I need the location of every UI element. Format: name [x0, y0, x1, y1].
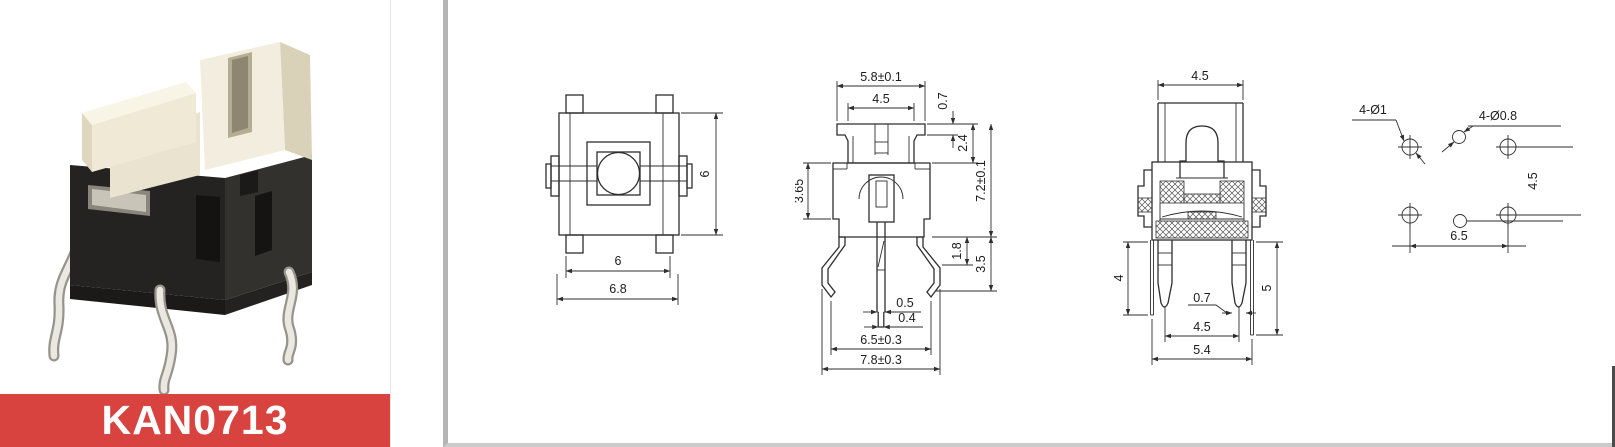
model-banner: KAN0713 [0, 394, 390, 447]
svg-text:4.5: 4.5 [1193, 320, 1210, 334]
svg-text:0.7: 0.7 [1193, 291, 1210, 305]
dim-leg-span: 7.8±0.3 [822, 289, 940, 375]
datasheet-strip: KAN0713 [0, 0, 1615, 447]
svg-text:7.8±0.3: 7.8±0.3 [860, 353, 902, 367]
dim-body-height: 3.65 [795, 163, 831, 219]
svg-text:0.7: 0.7 [936, 92, 950, 109]
svg-text:4.5: 4.5 [1526, 172, 1540, 189]
dim-side-right-leg: 5 [1256, 242, 1283, 335]
svg-text:5.4: 5.4 [1193, 343, 1210, 357]
side-view-drawing: 4.5 4 5 0.7 4.5 [1100, 55, 1345, 385]
svg-text:1.8: 1.8 [950, 242, 964, 259]
hole-crosshair-bottom-left [1398, 203, 1422, 227]
svg-text:5.8±0.1: 5.8±0.1 [860, 70, 902, 84]
svg-text:3.5: 3.5 [974, 255, 988, 272]
dim-shaft-tip-width: 0.4 [864, 311, 923, 327]
hole-plain-top [1453, 131, 1466, 144]
label-holes-large: 4-Ø1 [1352, 103, 1425, 164]
switch-body [70, 155, 312, 315]
dim-leg-bend-height: 1.8 [942, 237, 973, 265]
dim-side-leg-thickness: 0.7 [1188, 291, 1256, 313]
svg-text:3.65: 3.65 [795, 179, 806, 203]
hole-plain-bottom [1454, 215, 1467, 228]
svg-text:0.5: 0.5 [896, 296, 913, 310]
pcb-layout-drawing: 4-Ø1 4-Ø0.8 4.5 6.5 [1340, 90, 1595, 265]
dim-side-left-leg: 4 [1112, 242, 1148, 315]
dim-tip-span: 6.5±0.3 [831, 301, 931, 355]
svg-text:2.4: 2.4 [956, 134, 970, 151]
svg-text:4-Ø1: 4-Ø1 [1359, 103, 1387, 117]
svg-text:4.5: 4.5 [872, 92, 889, 106]
svg-text:6.8: 6.8 [609, 282, 626, 296]
photo-panel: KAN0713 [0, 0, 390, 447]
svg-text:6.5±0.3: 6.5±0.3 [860, 333, 902, 347]
dim-cap-height: 2.4 [932, 124, 978, 163]
svg-text:5: 5 [1260, 284, 1274, 291]
dim-shaft-width: 0.5 [863, 296, 921, 312]
svg-text:4.5: 4.5 [1191, 69, 1208, 83]
svg-text:6: 6 [698, 170, 712, 177]
top-view-geometry [546, 95, 692, 253]
dim-side-leg-span: 4.5 [1165, 307, 1239, 342]
top-view-drawing: 6 6 6.8 [460, 60, 760, 310]
dim-cap-width: 4.5 [848, 92, 914, 121]
svg-text:6.5: 6.5 [1450, 229, 1467, 243]
switch-leg-right [288, 272, 293, 360]
pcb-holes [1398, 131, 1581, 228]
dim-top-width-inner: 6 [566, 254, 670, 278]
dim-top-width-outer: 6.8 [557, 274, 678, 305]
svg-text:4: 4 [1112, 274, 1126, 281]
dim-pcb-col-pitch: 6.5 [1392, 224, 1526, 253]
front-view-drawing: 5.8±0.1 4.5 0.7 2.4 7.2±0.1 [795, 55, 1030, 380]
svg-text:0.4: 0.4 [898, 311, 915, 325]
dim-flange-thickness: 0.7 [927, 92, 978, 148]
svg-text:4-Ø0.8: 4-Ø0.8 [1479, 109, 1517, 123]
svg-text:7.2±0.1: 7.2±0.1 [974, 160, 988, 202]
photo-panel-edge [390, 0, 391, 447]
product-photo [0, 0, 390, 394]
svg-text:6: 6 [615, 254, 622, 268]
front-view-geometry [822, 124, 940, 327]
dim-side-cap-width: 4.5 [1158, 69, 1243, 100]
model-label: KAN0713 [101, 400, 288, 441]
dim-leg-height: 3.5 [935, 237, 997, 291]
dim-pcb-row-pitch: 4.5 [1526, 172, 1540, 189]
